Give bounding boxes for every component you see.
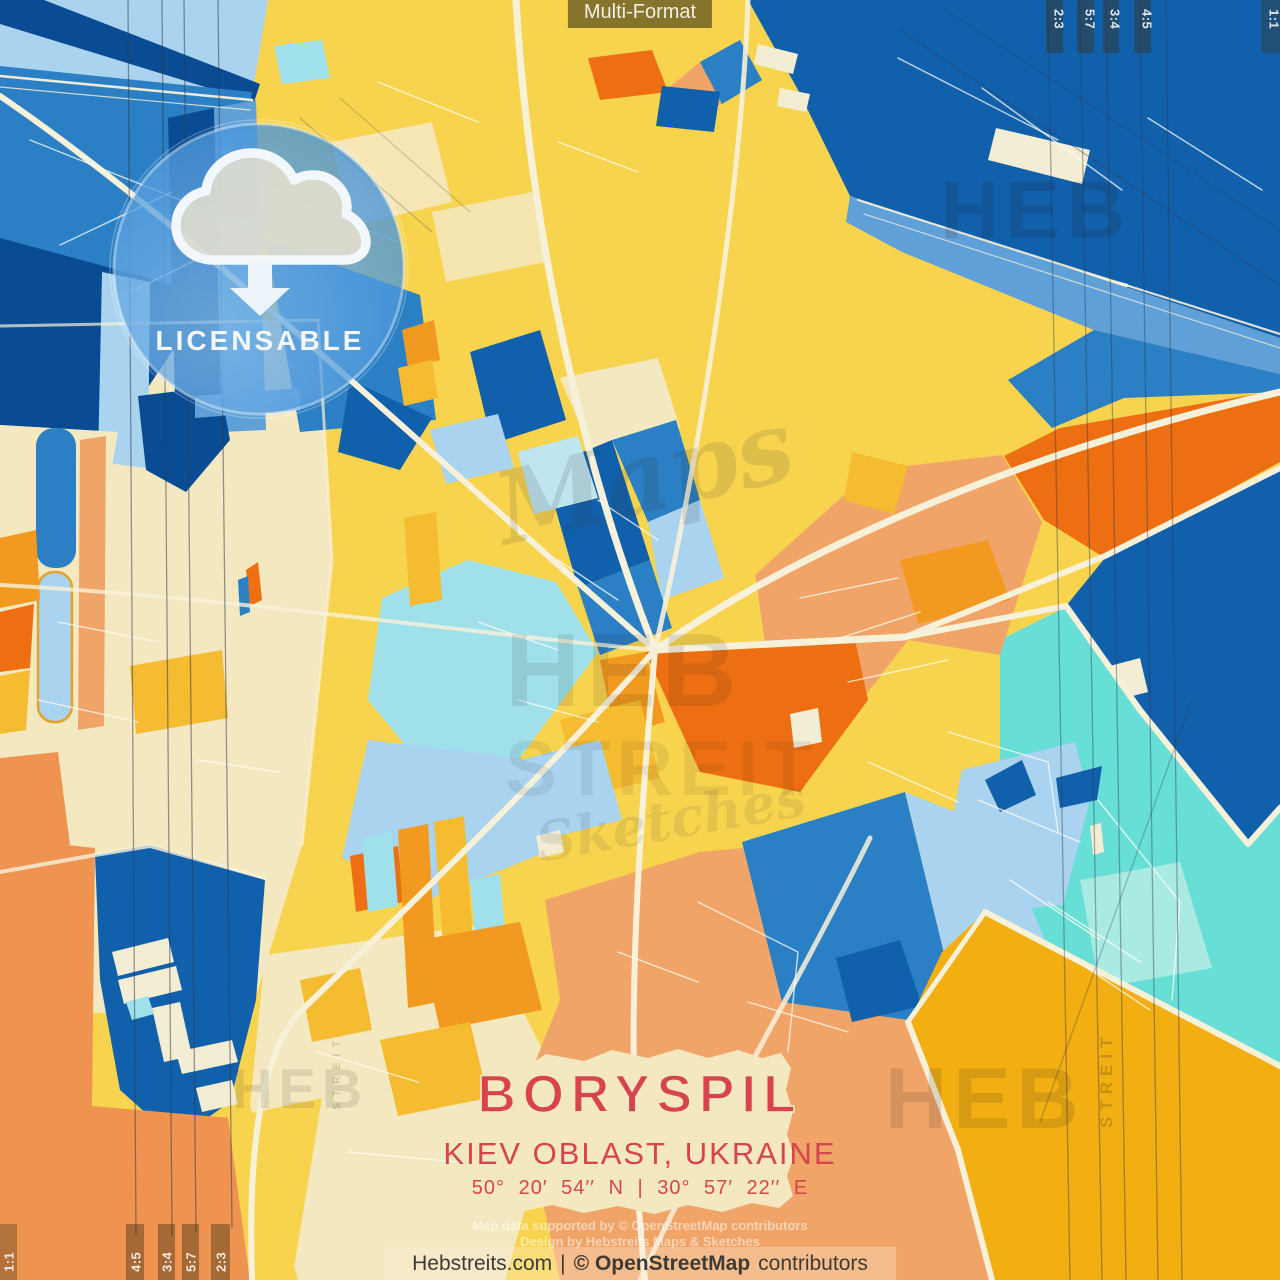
map-shape [274,40,330,84]
aspect-mark-label: 3:4 [160,1251,175,1272]
title-card: BORYSPIL BORYSPIL KIEV OBLAST, UKRAINE 5… [443,1049,836,1214]
map-poster: Maps HEB STREIT Sketches HEB HEB STREIT … [0,0,1280,1280]
map-shape [38,572,72,722]
map-data-credit-line: Map data supported by © OpenStreetMap co… [0,1218,1280,1234]
footer-osm-link[interactable]: © OpenStreetMap [574,1252,751,1276]
map-shape [0,530,40,608]
aspect-mark-label: 1:1 [1267,9,1280,29]
aspect-mark-label: 2:3 [214,1252,229,1272]
aspect-mark-label: 5:7 [1083,9,1098,29]
watermark-heb: HEB [505,613,743,729]
region-subtitle: KIEV OBLAST, UKRAINE [443,1136,836,1171]
watermark-streit: STREIT [1097,1032,1116,1128]
aspect-mark-label: 4:5 [1140,9,1155,29]
watermark-heb: HEB [232,1057,368,1120]
aspect-mark-label: 4:5 [129,1252,144,1272]
map-shape [36,428,76,568]
map-shape [656,86,720,132]
format-badge: Multi-Format [568,0,712,28]
footer-credit-bar: Hebstreits.com | © OpenStreetMap contrib… [384,1247,896,1280]
map-shape [0,670,30,734]
footer-divider: | [560,1252,565,1276]
map-shape [0,752,70,850]
aspect-mark-label: 1:1 [2,1252,17,1272]
watermark-heb: HEB [885,1051,1085,1147]
aspect-mark-label: 3:4 [1108,9,1123,30]
watermark-heb: HEB [940,165,1131,256]
coordinates-line: 50° 20′ 54′′ N | 30° 57′ 22′′ E [472,1177,808,1199]
map-shape [362,832,398,912]
map-shape [398,360,438,406]
design-credits: Map data supported by © OpenStreetMap co… [0,1218,1280,1250]
map-art: Maps HEB STREIT Sketches HEB HEB STREIT … [0,0,1280,1280]
map-shape [238,576,250,616]
footer-contributors-label: contributors [758,1252,868,1276]
license-badge-label: LICENSABLE [156,325,365,356]
aspect-mark-label: 2:3 [1052,9,1067,29]
watermark-streit: STREIT [331,1035,343,1110]
map-shape [0,604,34,672]
download-arrow-shaft [248,262,272,290]
map-shape [404,512,442,606]
city-title-inline: BORYSPIL [478,1065,803,1124]
aspect-mark-label: 5:7 [184,1252,199,1272]
map-shape [78,436,106,730]
footer-site-link[interactable]: Hebstreits.com [412,1252,552,1276]
